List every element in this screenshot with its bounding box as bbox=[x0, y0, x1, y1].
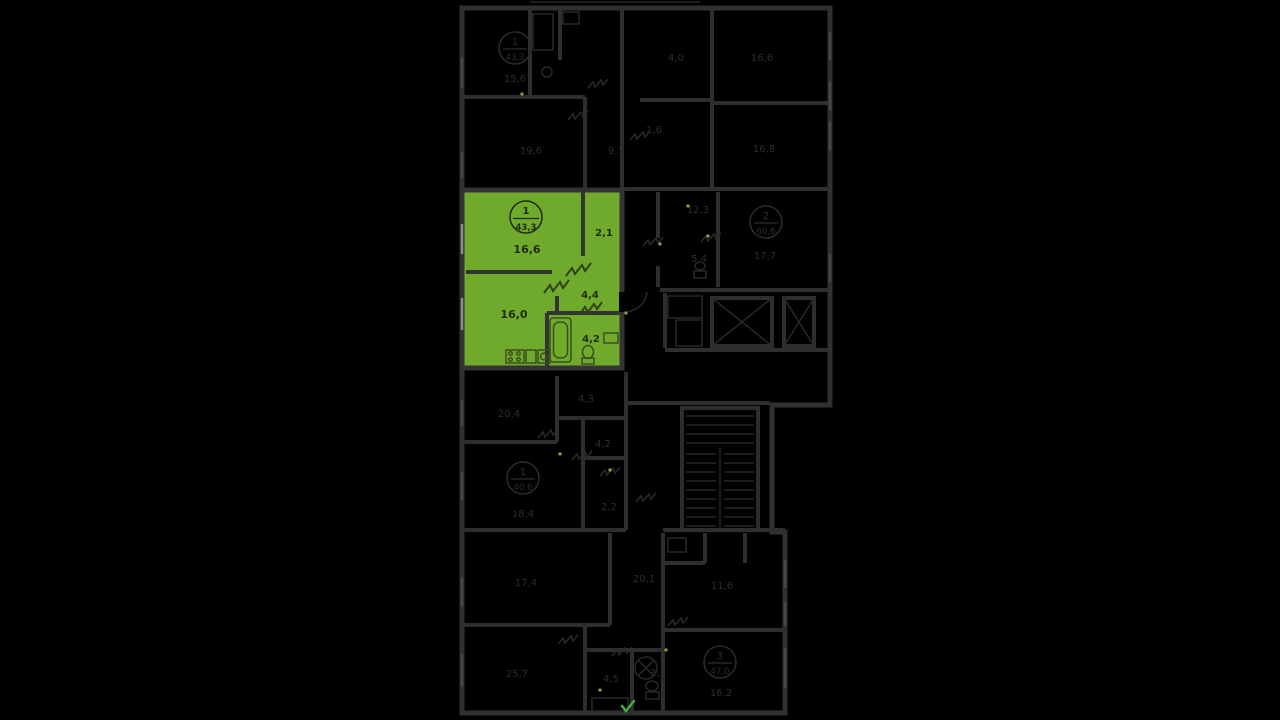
apartment-badge: 2 60,6 bbox=[750, 206, 782, 238]
apartment-area: 40,6 bbox=[514, 483, 533, 493]
apartment-area: 43,3 bbox=[516, 223, 537, 233]
room-label: 17,4 bbox=[515, 578, 537, 589]
apartment-badge: 1 40,6 bbox=[507, 462, 539, 494]
elevator-icons bbox=[668, 296, 814, 346]
toilet-tank bbox=[694, 271, 706, 278]
apartment-number: 2 bbox=[763, 211, 769, 222]
room-label: 1,6 bbox=[646, 125, 662, 136]
entry-door-arc bbox=[627, 292, 647, 312]
room-label: 9,7 bbox=[608, 146, 624, 157]
toilet-icon bbox=[542, 67, 552, 77]
room-label: 12,3 bbox=[687, 205, 709, 216]
apartment-number: 1 bbox=[523, 206, 530, 217]
room-label: 20,4 bbox=[498, 409, 520, 420]
room-label: 11,6 bbox=[711, 581, 733, 592]
stair-treads bbox=[686, 416, 754, 528]
room-label: 4,3 bbox=[578, 394, 594, 405]
apartment-area: 60,6 bbox=[757, 227, 776, 237]
room-label: 18,4 bbox=[512, 509, 534, 520]
room-label: 4,5 bbox=[603, 674, 619, 685]
apartment-number: 3 bbox=[717, 651, 723, 662]
room-label-kitchen: 16,0 bbox=[500, 308, 527, 321]
room-label: 2,2 bbox=[601, 502, 617, 513]
bathtub-icon bbox=[533, 14, 553, 50]
room-label: 4,0 bbox=[668, 53, 684, 64]
apartment-number: 1 bbox=[520, 467, 526, 478]
toilet-icon bbox=[646, 681, 658, 691]
apartment-number: 1 bbox=[512, 37, 518, 48]
apartment-badge: 3 47,0 bbox=[704, 646, 736, 678]
apartment-area: 43,3 bbox=[506, 53, 525, 63]
elevator-cross bbox=[712, 298, 772, 346]
shaft-cell bbox=[676, 320, 702, 346]
room-label: 5,4 bbox=[691, 254, 707, 265]
staircase-icon bbox=[682, 408, 758, 530]
apartment-badge: 1 43,3 bbox=[499, 32, 531, 64]
room-label: 4,2 bbox=[595, 439, 611, 450]
room-label-living: 16,6 bbox=[513, 243, 540, 256]
room-label: 20,1 bbox=[633, 574, 655, 585]
room-label: 3,3 bbox=[650, 668, 666, 679]
room-label-bathroom: 4,2 bbox=[582, 334, 600, 345]
elevator-cross bbox=[784, 298, 814, 346]
floorplan-svg: 15,6 19,6 9,7 4,0 16,6 1,6 16,8 12,3 17,… bbox=[0, 0, 1280, 720]
room-label: 16,8 bbox=[753, 144, 775, 155]
cabinet-icon bbox=[668, 538, 686, 552]
sink-icon bbox=[563, 12, 579, 24]
selected-apartment[interactable]: 1 43,3 16,6 2,1 4,4 16,0 4,2 bbox=[462, 190, 647, 368]
room-label: 17,7 bbox=[754, 251, 776, 262]
apartment-area: 47,0 bbox=[711, 667, 730, 677]
toilet-tank bbox=[646, 692, 659, 699]
room-label: 15,6 bbox=[504, 74, 526, 85]
room-label-corridor: 4,4 bbox=[581, 290, 599, 301]
room-label: 19,6 bbox=[520, 146, 542, 157]
entry-opening bbox=[619, 292, 627, 312]
dim-room-labels: 15,6 19,6 9,7 4,0 16,6 1,6 16,8 12,3 17,… bbox=[498, 53, 776, 699]
shaft-cell bbox=[668, 296, 702, 318]
floorplan-viewport: 15,6 19,6 9,7 4,0 16,6 1,6 16,8 12,3 17,… bbox=[0, 0, 1280, 720]
door-hinge-dots bbox=[520, 92, 709, 691]
room-label-hall: 2,1 bbox=[595, 228, 613, 239]
room-label: 25,7 bbox=[506, 669, 528, 680]
bathtub-icon bbox=[592, 698, 628, 711]
room-label: 16,2 bbox=[710, 688, 732, 699]
room-label: 16,6 bbox=[751, 53, 773, 64]
door-hinge-dot bbox=[624, 311, 627, 314]
